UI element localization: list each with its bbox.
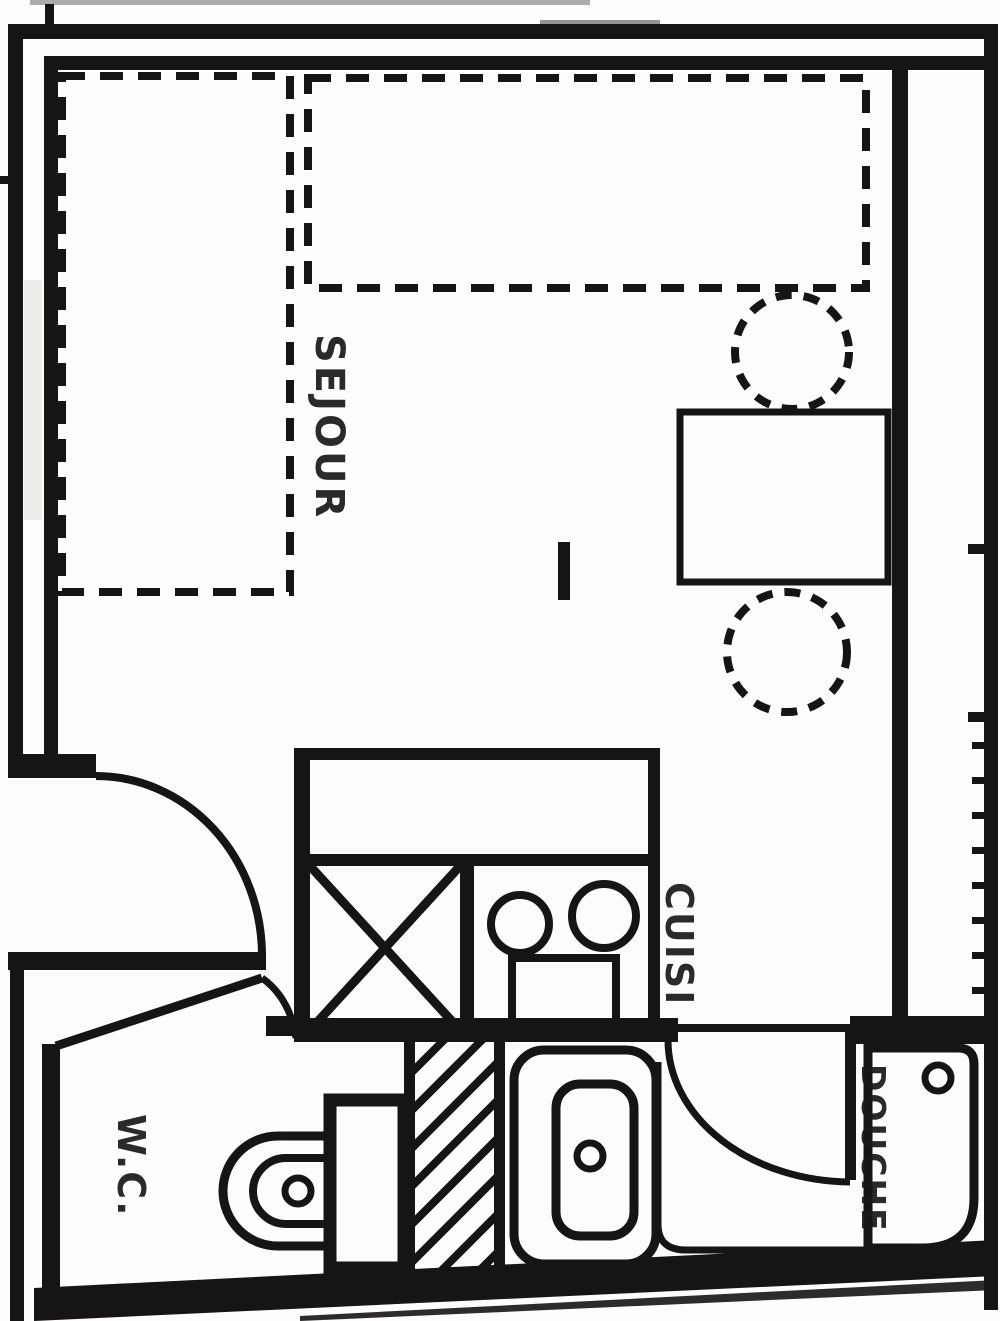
kitchen-block [294,748,660,1036]
chair-dashed-circle [727,592,847,712]
top-outer-wall [8,24,996,39]
kitchen-counter-divider [294,854,658,866]
kitchen-left-wall [294,750,310,1036]
kitchen-label: CUISI [657,882,701,1006]
doors [56,776,856,1182]
bath-door-header [676,1024,850,1032]
bath-door-swing-arc [668,1040,850,1182]
scan-smudge [24,280,42,520]
living-room-label: SEJOUR [306,334,352,520]
toilet-cistern [330,1100,404,1268]
entry-door-jamb [8,754,96,778]
duct-right-edge [494,1042,505,1274]
stray-plan-mark [558,542,570,600]
sink-drainer [512,958,616,1022]
chair-dashed-circle [735,295,849,409]
wc-left-wall [42,1044,60,1302]
right-wall-window-nubs [972,742,984,994]
left-inner-wall-upper [44,56,58,756]
dining-table [680,412,888,582]
wc-door-leaf [56,978,262,1046]
bath-top-wall-right [850,1016,996,1044]
bath-top-wall-left [294,1018,678,1042]
living-room-furniture [62,76,888,712]
wardrobe-dashed-outline [62,76,290,592]
top-wall-tick [45,4,54,28]
right-wall-tick [968,544,984,554]
kitchen-counter-top-edge [294,748,658,760]
left-outer-wall-upper [8,24,23,775]
right-outer-wall [984,24,998,1310]
shower-label: DOUCHE [854,1064,893,1233]
wc-label: W.C. [109,1114,153,1218]
sink-basin-right [572,884,636,948]
top-inner-wall [44,56,996,70]
interior-long-wall [892,66,908,1036]
sink-basin-left [491,895,549,953]
entry-door-swing-arc [96,776,262,956]
toilet-bowl-outer [223,1136,334,1246]
right-wall-tick [968,712,984,722]
scan-edge-mark [30,0,590,5]
wc-fixtures [223,1100,404,1268]
kitchen-unit-divider [460,854,474,1036]
hall-bottom-wall [8,952,266,970]
floor-plan-canvas: SEJOUR CUISI W.C. DOUCHE [0,0,1000,1321]
bed-dashed-outline [308,78,866,288]
left-outer-wall-lower [10,952,24,1321]
